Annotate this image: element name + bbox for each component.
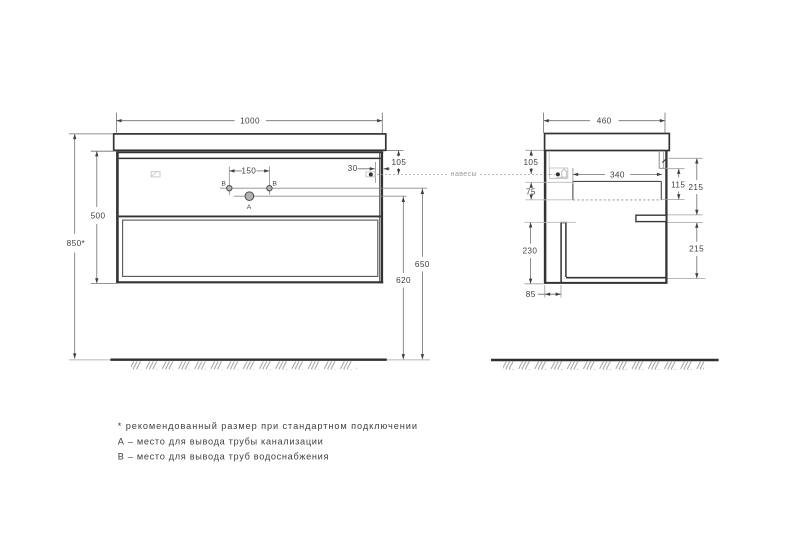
svg-text:115: 115 — [671, 180, 685, 189]
svg-text:460: 460 — [597, 116, 612, 125]
svg-text:850*: 850* — [67, 239, 86, 248]
svg-text:1000: 1000 — [240, 117, 260, 126]
svg-text:B: B — [272, 180, 277, 187]
svg-text:85: 85 — [526, 290, 536, 299]
svg-text:30: 30 — [348, 164, 358, 173]
svg-text:620: 620 — [396, 276, 411, 285]
svg-text:215: 215 — [689, 245, 704, 254]
svg-text:650: 650 — [415, 260, 430, 269]
svg-text:340: 340 — [610, 170, 625, 179]
svg-text:B: B — [221, 180, 226, 187]
svg-text:В – место для вывода труб водо: В – место для вывода труб водоснабжения — [118, 452, 329, 462]
svg-text:215: 215 — [688, 183, 703, 192]
svg-text:A: A — [247, 204, 252, 211]
svg-text:230: 230 — [522, 247, 537, 256]
svg-text:105: 105 — [523, 158, 538, 167]
svg-text:75: 75 — [526, 188, 536, 197]
svg-text:105: 105 — [391, 158, 406, 167]
svg-text:А – место для вывода трубы кан: А – место для вывода трубы канализации — [118, 436, 324, 446]
svg-text:* рекомендованный размер при с: * рекомендованный размер при стандартном… — [118, 421, 418, 431]
svg-text:навесы: навесы — [451, 171, 477, 178]
svg-text:150: 150 — [241, 167, 256, 176]
svg-text:500: 500 — [91, 211, 106, 220]
